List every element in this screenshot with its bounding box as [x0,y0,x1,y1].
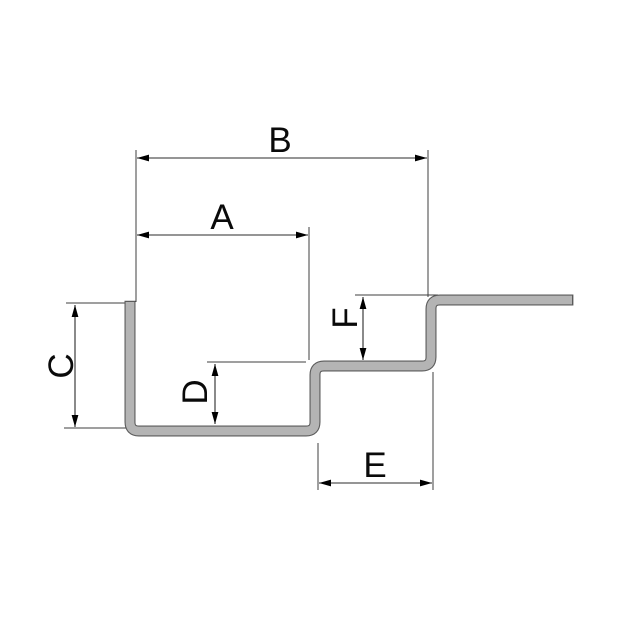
dim-label-e: E [363,446,386,485]
dim-label-b: B [268,121,291,160]
extension-lines [64,150,438,490]
dim-label-f: F [326,307,365,328]
dim-label-c: C [42,353,81,378]
drawing-canvas: B A C D F E [0,0,618,618]
dim-label-a: A [210,198,234,237]
profile-diagram: B A C D F E [0,0,618,618]
dim-label-d: D [176,379,215,404]
